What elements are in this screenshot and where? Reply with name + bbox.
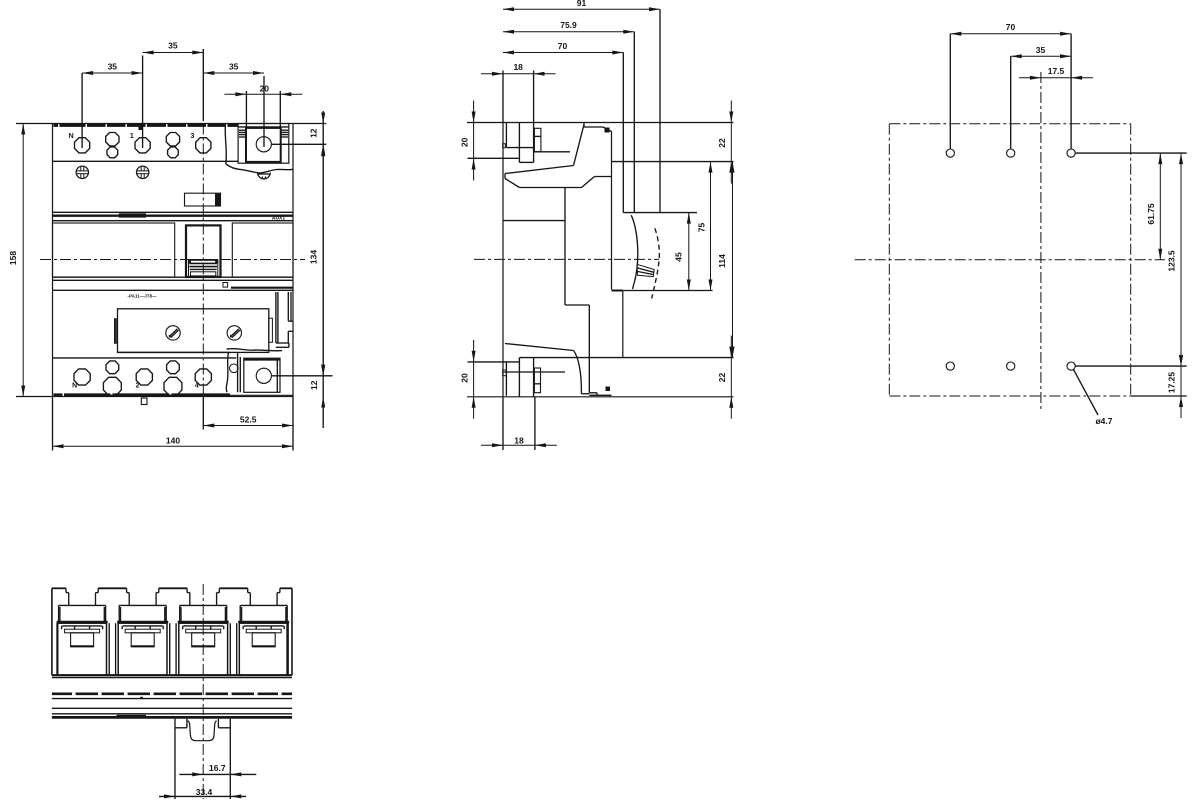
svg-text:91: 91 [577, 0, 587, 8]
svg-text:45: 45 [674, 252, 684, 262]
svg-text:35: 35 [108, 62, 118, 72]
svg-text:18: 18 [514, 435, 524, 445]
svg-text:35: 35 [168, 41, 178, 51]
svg-text:134: 134 [309, 250, 319, 264]
svg-text:22: 22 [717, 138, 727, 148]
svg-text:2: 2 [136, 383, 140, 390]
svg-text:70: 70 [558, 41, 568, 51]
svg-text:75: 75 [697, 223, 707, 233]
svg-text:N: N [69, 133, 74, 140]
svg-text:4: 4 [195, 383, 199, 390]
svg-text:ø4.7: ø4.7 [1095, 416, 1112, 426]
svg-text:N: N [72, 383, 77, 390]
svg-text:33.4: 33.4 [196, 787, 213, 797]
svg-text:70: 70 [1006, 22, 1016, 32]
svg-text:52.5: 52.5 [240, 414, 257, 424]
svg-text:12: 12 [309, 128, 319, 138]
svg-text:16.7: 16.7 [209, 763, 226, 773]
svg-text:20: 20 [260, 84, 270, 94]
svg-text:17.25: 17.25 [1167, 372, 1177, 394]
svg-text:1: 1 [130, 133, 134, 140]
svg-text:35: 35 [229, 62, 239, 72]
svg-text:20: 20 [459, 137, 469, 147]
svg-text:22: 22 [717, 373, 727, 383]
svg-text:114: 114 [717, 254, 727, 268]
svg-text:158: 158 [8, 251, 18, 265]
svg-text:123.5: 123.5 [1167, 250, 1177, 272]
svg-text:140: 140 [166, 436, 180, 446]
svg-text:17.5: 17.5 [1048, 66, 1065, 76]
svg-text:20: 20 [459, 373, 469, 383]
svg-text:35: 35 [1036, 45, 1046, 55]
svg-text:12: 12 [309, 380, 319, 390]
svg-text:61.75: 61.75 [1146, 203, 1156, 225]
svg-text:75.9: 75.9 [560, 20, 577, 30]
svg-text:-PA11—JT8—: -PA11—JT8— [128, 294, 157, 299]
svg-text:3: 3 [190, 133, 194, 140]
svg-text:18: 18 [513, 62, 523, 72]
